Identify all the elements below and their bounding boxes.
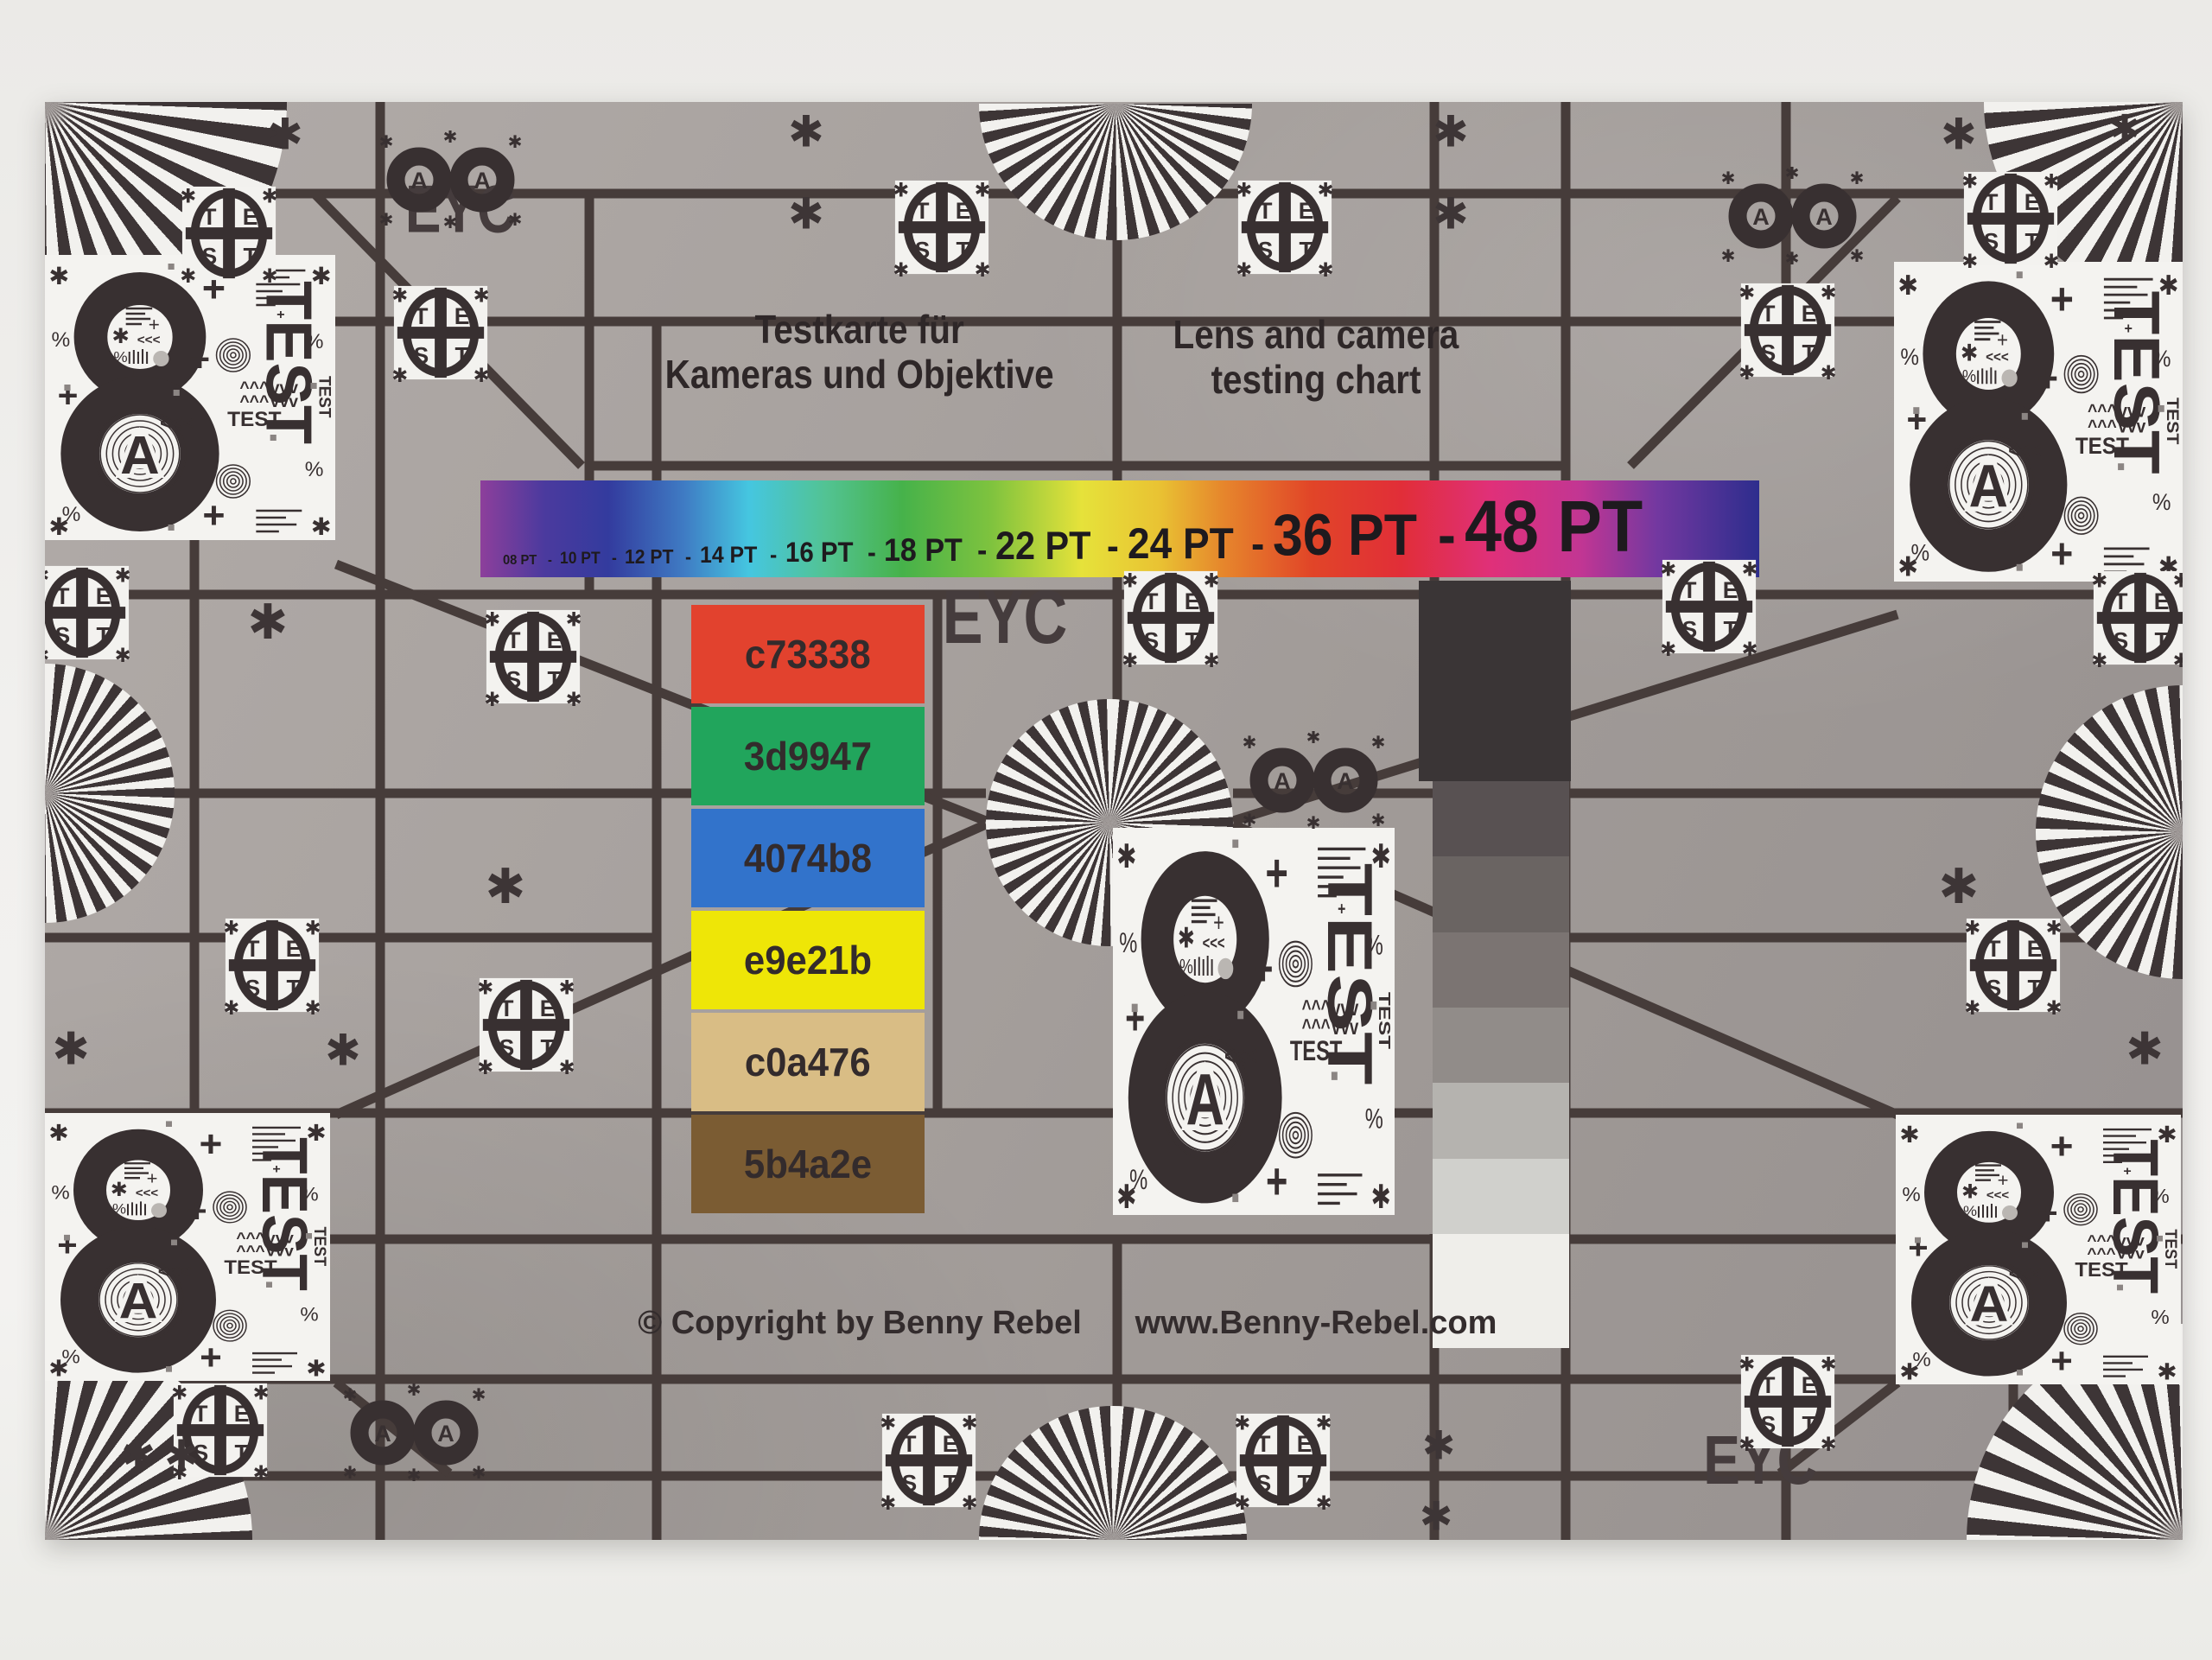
svg-text:✱: ✱ bbox=[1964, 997, 1980, 1016]
test-circle-marker: TE ST ✱✱ ✱✱ bbox=[1960, 168, 2062, 270]
grayscale-step bbox=[1433, 1083, 1569, 1159]
svg-text:+: + bbox=[187, 1193, 207, 1230]
svg-text:T: T bbox=[1297, 1470, 1311, 1496]
svg-text:✱: ✱ bbox=[1306, 731, 1321, 747]
svg-text:✱: ✱ bbox=[1721, 169, 1736, 188]
svg-text:✱: ✱ bbox=[880, 1492, 896, 1511]
svg-text:✱: ✱ bbox=[1738, 1354, 1755, 1376]
svg-text:^^^: ^^^ bbox=[2087, 1244, 2115, 1262]
svg-text:S: S bbox=[245, 975, 261, 1001]
color-patch-hex-label: 3d9947 bbox=[744, 733, 872, 779]
svg-text:A: A bbox=[1337, 768, 1354, 794]
asterisk-mark: ✱ bbox=[788, 193, 824, 236]
svg-text:A: A bbox=[1815, 204, 1833, 230]
pt-separator: - bbox=[770, 542, 777, 569]
grayscale-step bbox=[1419, 581, 1571, 781]
pt-size-label: 14 PT bbox=[700, 542, 757, 569]
svg-text:✱: ✱ bbox=[45, 565, 49, 587]
svg-text:E: E bbox=[1185, 588, 1200, 614]
svg-text:%: % bbox=[1119, 927, 1137, 959]
svg-text:%: % bbox=[2151, 1307, 2169, 1328]
svg-text:T: T bbox=[2154, 627, 2168, 653]
svg-text:S: S bbox=[1144, 627, 1160, 653]
svg-text:✱: ✱ bbox=[477, 977, 493, 999]
svg-text:E: E bbox=[943, 1431, 958, 1457]
color-patch-4074b8: 4074b8 bbox=[691, 809, 925, 907]
eight-test-square: ✱% <<<+ + A ++ ++ + TEST TEST TEST ^^^^^… bbox=[1896, 1115, 2181, 1384]
svg-text:+: + bbox=[200, 1338, 222, 1377]
svg-text:S: S bbox=[1761, 1411, 1777, 1437]
pt-size-label: 18 PT bbox=[884, 532, 963, 569]
svg-text:T: T bbox=[245, 936, 259, 962]
svg-text:✱: ✱ bbox=[1306, 814, 1321, 830]
pt-size-label: 36 PT bbox=[1273, 501, 1417, 569]
svg-text:✱: ✱ bbox=[477, 1057, 493, 1076]
svg-text:A: A bbox=[1274, 768, 1291, 794]
svg-text:✱: ✱ bbox=[1318, 259, 1334, 278]
svg-text:E: E bbox=[956, 198, 971, 224]
asterisk-mark: ✱ bbox=[1939, 862, 1980, 911]
asterisk-mark: ✱ bbox=[164, 1436, 199, 1478]
pt-size-label: 22 PT bbox=[995, 524, 1090, 569]
test-circle-marker: TE ST ✱✱ ✱✱ bbox=[482, 606, 584, 708]
svg-text:TEST: TEST bbox=[227, 408, 282, 431]
test-circle-marker: TE ST ✱✱ ✱✱ bbox=[2089, 567, 2183, 669]
svg-text:✱: ✱ bbox=[893, 259, 909, 278]
test-circle-marker: TE ST ✱✱ ✱✱ bbox=[1120, 567, 1222, 669]
color-patch-hex-label: c73338 bbox=[745, 631, 871, 677]
svg-text:✱: ✱ bbox=[1122, 650, 1138, 669]
svg-text:T: T bbox=[1682, 577, 1696, 603]
asterisk-mark: ✱ bbox=[1422, 1426, 1456, 1466]
svg-text:✱: ✱ bbox=[1721, 247, 1736, 266]
svg-text:✱: ✱ bbox=[1897, 552, 1918, 582]
asterisk-mark: ✱ bbox=[486, 862, 526, 911]
svg-text:T: T bbox=[286, 975, 300, 1001]
svg-text:✱: ✱ bbox=[1234, 1492, 1250, 1511]
svg-text:✱: ✱ bbox=[472, 1386, 486, 1405]
svg-text:TEST: TEST bbox=[311, 1227, 330, 1267]
pt-size-label: 16 PT bbox=[785, 537, 854, 569]
svg-text:TEST: TEST bbox=[1290, 1035, 1343, 1067]
color-patch-hex-label: 5b4a2e bbox=[744, 1141, 872, 1187]
eight-a-marker: AA ✱✱✱ ✱✱✱ bbox=[1719, 167, 1866, 266]
svg-text:✱: ✱ bbox=[2044, 171, 2060, 193]
svg-text:✱: ✱ bbox=[962, 1413, 978, 1434]
svg-text:✱: ✱ bbox=[1236, 259, 1252, 278]
svg-text:✱: ✱ bbox=[1821, 1354, 1837, 1376]
svg-text:✱: ✱ bbox=[1738, 1434, 1755, 1453]
svg-text:TEST: TEST bbox=[2075, 434, 2129, 459]
svg-text:TEST: TEST bbox=[224, 1256, 276, 1278]
fan-left-middle bbox=[45, 664, 175, 923]
svg-text:✱: ✱ bbox=[407, 1466, 422, 1483]
svg-text:✱: ✱ bbox=[48, 1120, 68, 1146]
svg-text:✱: ✱ bbox=[48, 1355, 68, 1381]
svg-text:TEST: TEST bbox=[1376, 992, 1394, 1049]
asterisk-mark: ✱ bbox=[788, 111, 824, 154]
svg-text:+: + bbox=[1266, 1153, 1287, 1210]
svg-text:+: + bbox=[2050, 1125, 2074, 1167]
svg-text:E: E bbox=[2154, 588, 2170, 614]
asterisk-mark: ✱ bbox=[121, 1436, 156, 1478]
svg-text:<<<: <<< bbox=[2009, 1264, 2043, 1284]
svg-text:✱: ✱ bbox=[1371, 811, 1386, 830]
svg-text:✱: ✱ bbox=[2173, 570, 2183, 592]
color-patch-c0a476: c0a476 bbox=[691, 1013, 925, 1111]
asterisk-mark: ✱ bbox=[52, 1027, 90, 1072]
svg-text:S: S bbox=[55, 622, 71, 648]
svg-text:%: % bbox=[1179, 955, 1193, 978]
website-text: www.Benny-Rebel.com bbox=[1014, 1305, 1618, 1342]
asterisk-mark: ✱ bbox=[2109, 111, 2141, 149]
svg-text:✱: ✱ bbox=[1961, 340, 1978, 366]
svg-text:TEST: TEST bbox=[2075, 1259, 2128, 1281]
test-circle-marker: TE ST ✱✱ ✱✱ bbox=[475, 974, 577, 1076]
svg-text:✱: ✱ bbox=[1738, 362, 1755, 381]
test-circle-marker: TE ST ✱✱ ✱✱ bbox=[1658, 556, 1760, 658]
svg-text:E: E bbox=[2027, 936, 2043, 962]
svg-text:✱: ✱ bbox=[45, 645, 49, 664]
svg-text:✱: ✱ bbox=[893, 180, 909, 201]
svg-text:✱: ✱ bbox=[1660, 639, 1676, 658]
svg-text:✱: ✱ bbox=[2173, 650, 2183, 669]
svg-text:✱: ✱ bbox=[111, 325, 129, 348]
pt-separator: - bbox=[1107, 524, 1119, 569]
svg-text:T: T bbox=[943, 1470, 957, 1496]
svg-text:✱: ✱ bbox=[1116, 839, 1136, 875]
svg-text:S: S bbox=[202, 243, 218, 269]
svg-text:vvv: vvv bbox=[2118, 417, 2146, 436]
svg-text:E: E bbox=[1297, 1431, 1313, 1457]
svg-text:✱: ✱ bbox=[566, 689, 582, 708]
svg-text:+: + bbox=[1906, 398, 1927, 441]
eight-test-square: ✱% <<<+ + A ++ ++ + TEST TEST TEST ^^^^^… bbox=[1113, 828, 1395, 1215]
svg-text:✱: ✱ bbox=[253, 1383, 270, 1404]
svg-text:%: % bbox=[51, 328, 70, 352]
svg-text:T: T bbox=[202, 204, 216, 230]
grayscale-step bbox=[1433, 856, 1569, 932]
svg-text:+: + bbox=[2050, 275, 2074, 324]
svg-text:S: S bbox=[2113, 627, 2129, 653]
svg-text:S: S bbox=[499, 1034, 515, 1060]
svg-text:T: T bbox=[96, 622, 110, 648]
svg-text:T: T bbox=[194, 1401, 207, 1427]
svg-text:A: A bbox=[1970, 1275, 2009, 1332]
svg-text:%: % bbox=[1365, 930, 1383, 962]
asterisk-mark: ✱ bbox=[248, 598, 289, 646]
svg-text:<<<: <<< bbox=[160, 412, 194, 434]
color-patch-c73338: c73338 bbox=[691, 605, 925, 703]
svg-text:✱: ✱ bbox=[962, 1492, 978, 1511]
asterisk-mark: ✱ bbox=[1941, 113, 1977, 156]
svg-text:✱: ✱ bbox=[1850, 247, 1865, 266]
svg-text:T: T bbox=[1723, 616, 1737, 642]
photo-background: 08 PT-10 PT-12 PT-14 PT-16 PT-18 PT-22 P… bbox=[0, 0, 2212, 1660]
svg-text:✱: ✱ bbox=[2157, 1122, 2177, 1148]
svg-text:T: T bbox=[1802, 340, 1815, 366]
svg-text:✱: ✱ bbox=[2046, 918, 2063, 939]
color-patch-5b4a2e: 5b4a2e bbox=[691, 1115, 925, 1213]
svg-text:✱: ✱ bbox=[115, 565, 131, 587]
svg-text:T: T bbox=[234, 1440, 248, 1466]
svg-text:+: + bbox=[1908, 1230, 1928, 1266]
svg-text:+: + bbox=[58, 375, 79, 415]
pt-size-rainbow-bar: 08 PT-10 PT-12 PT-14 PT-16 PT-18 PT-22 P… bbox=[480, 480, 1759, 577]
svg-text:S: S bbox=[1682, 616, 1698, 642]
svg-text:T: T bbox=[499, 995, 513, 1021]
svg-text:✱: ✱ bbox=[1738, 283, 1755, 304]
svg-text:T: T bbox=[414, 303, 428, 329]
svg-text:+: + bbox=[2050, 1341, 2073, 1382]
svg-text:<<<: <<< bbox=[158, 1261, 192, 1281]
color-patch-column: c733383d99474074b8e9e21bc0a4765b4a2e bbox=[691, 605, 925, 1217]
svg-text:^^^: ^^^ bbox=[239, 393, 269, 411]
svg-text:S: S bbox=[1761, 340, 1777, 366]
svg-text:✱: ✱ bbox=[311, 512, 332, 540]
svg-text:E: E bbox=[547, 627, 563, 653]
svg-text:%: % bbox=[300, 1303, 318, 1325]
svg-text:E: E bbox=[540, 995, 556, 1021]
svg-text:+: + bbox=[2050, 529, 2073, 577]
svg-text:%: % bbox=[305, 458, 324, 481]
svg-text:E: E bbox=[286, 936, 302, 962]
test-circle-marker: TE ST ✱✱ ✱✱ bbox=[1737, 279, 1839, 381]
svg-text:✱: ✱ bbox=[2044, 251, 2060, 270]
svg-text:✱: ✱ bbox=[1122, 570, 1138, 592]
svg-text:✱: ✱ bbox=[1316, 1413, 1332, 1434]
svg-text:✱: ✱ bbox=[306, 1355, 326, 1381]
svg-text:✱: ✱ bbox=[2158, 271, 2179, 302]
pt-size-label: 48 PT bbox=[1465, 485, 1643, 569]
svg-text:S: S bbox=[1986, 975, 2002, 1001]
svg-text:✱: ✱ bbox=[484, 609, 500, 631]
svg-text:+: + bbox=[1195, 977, 1202, 996]
svg-text:A: A bbox=[1752, 204, 1770, 230]
svg-text:T: T bbox=[915, 198, 929, 224]
svg-text:<<<: <<< bbox=[1224, 1041, 1257, 1071]
svg-text:✱: ✱ bbox=[1234, 1413, 1250, 1434]
svg-text:E: E bbox=[454, 303, 470, 329]
svg-text:✱: ✱ bbox=[975, 180, 991, 201]
svg-text:%: % bbox=[113, 348, 127, 366]
svg-text:✱: ✱ bbox=[1316, 1492, 1332, 1511]
svg-text:E: E bbox=[96, 583, 111, 609]
svg-text:E: E bbox=[1723, 577, 1738, 603]
svg-text:✱: ✱ bbox=[223, 997, 239, 1016]
svg-text:✱: ✱ bbox=[1821, 1434, 1837, 1453]
svg-text:E: E bbox=[1802, 1372, 1817, 1398]
svg-text:✱: ✱ bbox=[1204, 650, 1220, 669]
color-patch-hex-label: c0a476 bbox=[745, 1039, 871, 1085]
grayscale-step bbox=[1433, 781, 1569, 857]
svg-text:✱: ✱ bbox=[1204, 570, 1220, 592]
svg-text:✱: ✱ bbox=[305, 918, 321, 939]
pt-size-label: 24 PT bbox=[1128, 518, 1234, 569]
svg-text:T: T bbox=[454, 342, 468, 368]
asterisk-mark: ✱ bbox=[1433, 111, 1469, 154]
test-circle-marker: TE ST ✱✱ ✱✱ bbox=[1962, 914, 2064, 1016]
svg-text:+: + bbox=[149, 314, 160, 335]
svg-text:+: + bbox=[200, 1124, 223, 1165]
svg-text:✱: ✱ bbox=[379, 133, 394, 152]
svg-text:E: E bbox=[2024, 189, 2040, 215]
svg-text:A: A bbox=[374, 1421, 391, 1447]
svg-text:✱: ✱ bbox=[171, 1383, 188, 1404]
svg-text:E: E bbox=[1802, 301, 1817, 327]
svg-text:E: E bbox=[1299, 198, 1314, 224]
test-circle-marker: TE ST ✱✱ ✱✱ bbox=[891, 176, 993, 278]
test-circle-marker: TE ST ✱✱ ✱✱ bbox=[221, 914, 323, 1016]
svg-text:T: T bbox=[1761, 1372, 1775, 1398]
svg-text:✱: ✱ bbox=[508, 211, 523, 230]
svg-text:✱: ✱ bbox=[391, 365, 408, 384]
pt-separator: - bbox=[977, 532, 987, 569]
svg-text:✱: ✱ bbox=[262, 186, 278, 207]
svg-text:T: T bbox=[1256, 1431, 1270, 1457]
test-circle-marker: TE ST ✱✱ ✱✱ bbox=[45, 562, 133, 664]
svg-text:T: T bbox=[1984, 189, 1998, 215]
svg-text:✱: ✱ bbox=[1318, 180, 1334, 201]
svg-text:✱: ✱ bbox=[880, 1413, 896, 1434]
svg-text:✱: ✱ bbox=[111, 1178, 128, 1199]
test-circle-marker: TE ST ✱✱ ✱✱ bbox=[1232, 1409, 1334, 1511]
asterisk-mark: ✱ bbox=[1433, 193, 1469, 236]
svg-text:%: % bbox=[2152, 347, 2171, 372]
svg-text:%: % bbox=[1902, 1184, 1920, 1205]
svg-text:✱: ✱ bbox=[1178, 923, 1195, 955]
svg-text:✱: ✱ bbox=[566, 609, 582, 631]
svg-text:^^^: ^^^ bbox=[1302, 1014, 1331, 1040]
svg-text:+: + bbox=[1978, 385, 1985, 401]
svg-text:✱: ✱ bbox=[508, 133, 523, 152]
fan-top-center bbox=[979, 104, 1252, 240]
svg-text:✱: ✱ bbox=[975, 259, 991, 278]
svg-text:T: T bbox=[1144, 588, 1158, 614]
svg-text:✱: ✱ bbox=[1371, 734, 1386, 753]
asterisk-mark: ✱ bbox=[267, 113, 303, 156]
svg-text:S: S bbox=[902, 1470, 918, 1496]
svg-text:+: + bbox=[57, 1227, 77, 1263]
svg-text:✱: ✱ bbox=[180, 186, 196, 207]
svg-text:T: T bbox=[243, 243, 257, 269]
svg-text:T: T bbox=[2113, 588, 2127, 614]
test-circle-marker: TE ST ✱✱ ✱✱ bbox=[1737, 1351, 1839, 1453]
svg-text:+: + bbox=[128, 1217, 135, 1230]
svg-text:A: A bbox=[437, 1421, 454, 1447]
svg-text:S: S bbox=[414, 342, 429, 368]
pt-separator: - bbox=[1251, 518, 1264, 569]
svg-text:%: % bbox=[51, 1181, 69, 1203]
svg-text:vvv: vvv bbox=[270, 393, 299, 411]
svg-text:✱: ✱ bbox=[1785, 167, 1800, 183]
svg-text:✱: ✱ bbox=[311, 262, 332, 289]
eight-a-marker: AA ✱✱✱ ✱✱✱ bbox=[1241, 731, 1388, 830]
svg-text:✱: ✱ bbox=[443, 213, 458, 230]
svg-text:T: T bbox=[540, 1034, 554, 1060]
svg-text:%: % bbox=[300, 1183, 318, 1205]
color-patch-e9e21b: e9e21b bbox=[691, 911, 925, 1009]
svg-text:<<<: <<< bbox=[2008, 438, 2042, 461]
svg-text:✱: ✱ bbox=[2157, 1358, 2177, 1384]
svg-text:✱: ✱ bbox=[253, 1462, 270, 1481]
svg-text:%: % bbox=[1365, 1103, 1383, 1135]
svg-text:✱: ✱ bbox=[474, 285, 490, 307]
test-circle-marker: TE ST ✱✱ ✱✱ bbox=[390, 282, 492, 384]
svg-text:✱: ✱ bbox=[1116, 1180, 1136, 1215]
svg-text:A: A bbox=[120, 426, 160, 486]
svg-text:T: T bbox=[1802, 1411, 1815, 1437]
svg-text:T: T bbox=[2027, 975, 2041, 1001]
svg-text:✱: ✱ bbox=[305, 997, 321, 1016]
svg-text:✱: ✱ bbox=[223, 918, 239, 939]
svg-text:✱: ✱ bbox=[1899, 1358, 1919, 1384]
svg-text:✱: ✱ bbox=[1821, 362, 1837, 381]
svg-text:✱: ✱ bbox=[559, 977, 575, 999]
grayscale-step bbox=[1433, 1008, 1569, 1084]
svg-text:%: % bbox=[1963, 1203, 1977, 1219]
svg-text:vvv: vvv bbox=[1332, 1014, 1359, 1040]
svg-text:%: % bbox=[1900, 345, 1919, 370]
svg-text:+: + bbox=[1998, 1171, 2009, 1191]
svg-text:✱: ✱ bbox=[1243, 811, 1257, 830]
svg-text:A: A bbox=[1186, 1059, 1224, 1141]
svg-text:✱: ✱ bbox=[474, 365, 490, 384]
svg-text:vvv: vvv bbox=[2117, 1244, 2145, 1262]
svg-text:T: T bbox=[1185, 627, 1198, 653]
svg-text:+: + bbox=[1125, 993, 1145, 1046]
svg-text:✱: ✱ bbox=[1850, 169, 1865, 188]
svg-text:✱: ✱ bbox=[2091, 570, 2107, 592]
test-circle-marker: TE ST ✱✱ ✱✱ bbox=[878, 1409, 980, 1511]
svg-text:✱: ✱ bbox=[1961, 251, 1978, 270]
pt-separator: - bbox=[1438, 501, 1456, 569]
svg-text:T: T bbox=[902, 1431, 916, 1457]
svg-text:✱: ✱ bbox=[379, 211, 394, 230]
svg-text:T: T bbox=[547, 666, 561, 692]
pt-separator: - bbox=[685, 545, 691, 569]
svg-text:✱: ✱ bbox=[407, 1383, 422, 1400]
svg-text:✱: ✱ bbox=[484, 689, 500, 708]
svg-text:%: % bbox=[305, 330, 324, 353]
grayscale-step bbox=[1433, 1159, 1569, 1235]
svg-text:A: A bbox=[119, 1273, 158, 1329]
svg-text:+: + bbox=[147, 1168, 158, 1188]
svg-text:T: T bbox=[1258, 198, 1272, 224]
svg-text:✱: ✱ bbox=[1897, 271, 1918, 302]
svg-text:A: A bbox=[474, 168, 491, 194]
svg-text:T: T bbox=[956, 237, 969, 263]
svg-text:✱: ✱ bbox=[48, 262, 69, 289]
svg-text:✱: ✱ bbox=[1371, 839, 1391, 875]
svg-text:+: + bbox=[1253, 944, 1273, 996]
svg-text:+: + bbox=[202, 494, 225, 537]
color-patch-3d9947: 3d9947 bbox=[691, 707, 925, 805]
svg-text:T: T bbox=[55, 583, 69, 609]
svg-text:✱: ✱ bbox=[1961, 1180, 1979, 1202]
svg-text:%: % bbox=[2151, 1186, 2169, 1207]
svg-text:+: + bbox=[1265, 843, 1288, 903]
svg-text:✱: ✱ bbox=[343, 1386, 358, 1405]
svg-text:%: % bbox=[112, 1200, 126, 1217]
svg-text:✱: ✱ bbox=[343, 1464, 358, 1483]
svg-text:E: E bbox=[243, 204, 258, 230]
svg-text:✱: ✱ bbox=[1243, 734, 1257, 753]
svg-text:✱: ✱ bbox=[306, 1120, 326, 1146]
svg-text:A: A bbox=[1969, 454, 2008, 521]
svg-text:✱: ✱ bbox=[1742, 639, 1758, 658]
svg-text:^^^: ^^^ bbox=[2088, 417, 2117, 436]
